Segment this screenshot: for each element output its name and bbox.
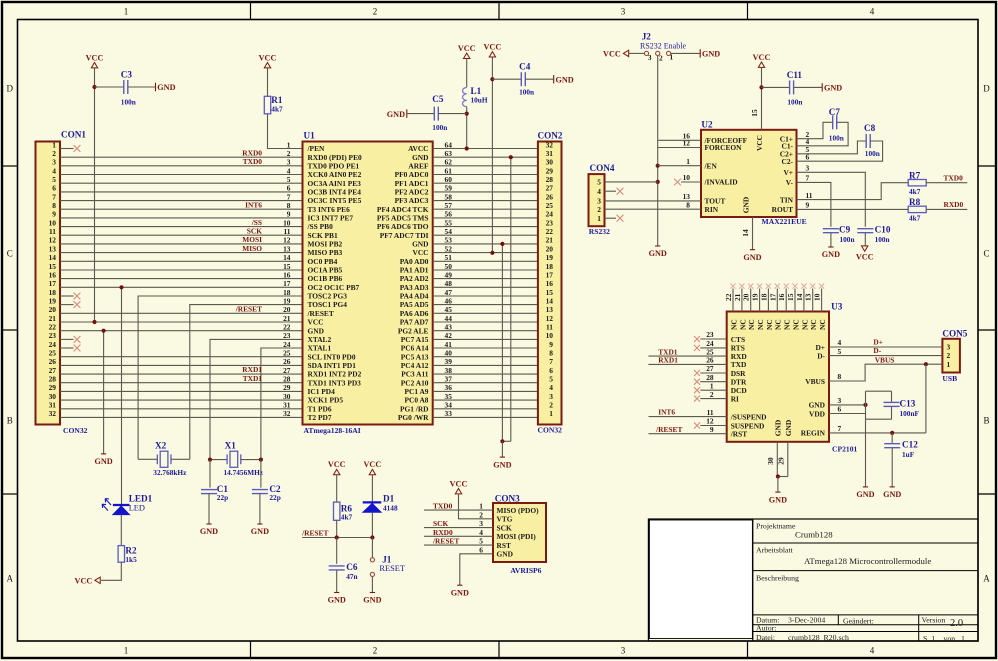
svg-text:Geändert:: Geändert: (843, 617, 874, 626)
svg-text:VCC: VCC (458, 44, 476, 53)
svg-text:15: 15 (786, 293, 795, 301)
svg-text:INT6: INT6 (658, 408, 675, 417)
svg-text:REGIN: REGIN (801, 429, 826, 438)
svg-text:LED: LED (129, 503, 145, 512)
svg-text:47n: 47n (346, 572, 357, 581)
svg-text:OC2 OC1C PB7: OC2 OC1C PB7 (308, 283, 360, 292)
svg-text:FORCEON: FORCEON (705, 143, 743, 152)
svg-text:PC0 A8: PC0 A8 (404, 396, 428, 405)
svg-text:4: 4 (870, 646, 875, 656)
svg-text:12: 12 (546, 314, 554, 323)
svg-text:PF2 ADC2: PF2 ADC2 (395, 188, 429, 197)
svg-text:7: 7 (549, 357, 553, 366)
svg-text:13: 13 (283, 244, 291, 253)
svg-text:46: 46 (445, 296, 453, 305)
svg-text:VCC: VCC (86, 53, 104, 62)
svg-text:12: 12 (49, 236, 57, 245)
svg-text:GND: GND (856, 490, 874, 499)
svg-text:ATmega128 Microcontrollermodul: ATmega128 Microcontrollermodule (804, 556, 931, 566)
svg-text:28: 28 (283, 375, 291, 384)
svg-text:41: 41 (445, 340, 453, 349)
svg-text:PF7 ADC7 TDI: PF7 ADC7 TDI (380, 231, 429, 240)
svg-text:PF1 ADC1: PF1 ADC1 (395, 179, 429, 188)
svg-text:29: 29 (49, 383, 57, 392)
svg-text:TXD0: TXD0 (944, 173, 964, 182)
svg-text:9: 9 (52, 210, 56, 219)
svg-text:VCC: VCC (856, 252, 874, 261)
svg-text:NC: NC (738, 319, 747, 330)
svg-text:17: 17 (49, 279, 57, 288)
svg-text:ATmega128-16AI: ATmega128-16AI (304, 426, 361, 435)
svg-text:19: 19 (49, 296, 57, 305)
svg-text:20: 20 (49, 305, 57, 314)
svg-text:X2: X2 (155, 440, 167, 450)
svg-text:8: 8 (549, 349, 553, 358)
svg-text:VCC: VCC (364, 460, 382, 469)
svg-text:/RESET: /RESET (307, 309, 334, 318)
svg-text:VBUS: VBUS (875, 355, 895, 364)
svg-text:32.768kHz: 32.768kHz (153, 468, 187, 477)
svg-text:/RESET: /RESET (301, 529, 328, 538)
svg-text:C5: C5 (432, 94, 444, 104)
svg-text:25: 25 (49, 349, 57, 358)
svg-text:3: 3 (549, 392, 553, 401)
svg-text:GND: GND (328, 596, 346, 605)
svg-text:22: 22 (49, 323, 57, 332)
svg-text:crumb128_R20.sch: crumb128_R20.sch (788, 633, 849, 642)
svg-text:GND: GND (387, 110, 405, 119)
svg-text:INT6: INT6 (245, 200, 262, 209)
svg-text:PA5 AD5: PA5 AD5 (400, 300, 429, 309)
svg-text:8: 8 (52, 201, 56, 210)
svg-text:GND: GND (497, 550, 513, 559)
svg-text:37: 37 (445, 375, 453, 384)
svg-text:D: D (6, 84, 13, 94)
svg-text:20: 20 (283, 305, 291, 314)
svg-text:23: 23 (546, 218, 554, 227)
svg-text:V-: V- (786, 178, 794, 187)
svg-text:10: 10 (683, 173, 691, 182)
svg-text:PA2 AD2: PA2 AD2 (400, 274, 429, 283)
svg-text:16: 16 (283, 270, 291, 279)
svg-text:29: 29 (546, 166, 554, 175)
svg-text:NC: NC (783, 319, 792, 330)
svg-text:J1: J1 (382, 555, 392, 565)
svg-text:T2 PD7: T2 PD7 (308, 413, 332, 422)
svg-text:3: 3 (479, 519, 483, 528)
svg-text:3-Dec-2004: 3-Dec-2004 (788, 616, 825, 625)
svg-text:GND: GND (774, 420, 783, 436)
svg-text:16: 16 (777, 293, 786, 301)
svg-text:L1: L1 (471, 86, 482, 96)
svg-text:GND: GND (649, 249, 667, 258)
svg-text:VCC: VCC (75, 577, 93, 586)
svg-text:MISO: MISO (242, 244, 262, 253)
svg-text:GND: GND (822, 250, 840, 259)
svg-text:55: 55 (445, 218, 453, 227)
svg-text:GND: GND (556, 75, 574, 84)
svg-text:26: 26 (49, 357, 57, 366)
svg-text:GND: GND (94, 457, 112, 466)
svg-text:30: 30 (766, 457, 775, 465)
svg-text:GND: GND (769, 495, 787, 504)
svg-text:14: 14 (795, 293, 804, 301)
svg-text:SCL INT0 PD0: SCL INT0 PD0 (308, 352, 356, 361)
svg-text:21: 21 (733, 293, 742, 301)
svg-text:PA7 AD7: PA7 AD7 (400, 318, 429, 327)
svg-text:6: 6 (479, 545, 483, 554)
svg-text:32: 32 (283, 409, 291, 418)
svg-text:1k5: 1k5 (125, 555, 137, 564)
svg-text:22p: 22p (217, 493, 228, 502)
svg-text:CTS: CTS (731, 335, 745, 344)
svg-text:1: 1 (287, 140, 291, 149)
svg-text:S. 1: S. 1 (923, 634, 935, 643)
svg-text:26: 26 (283, 357, 291, 366)
svg-text:3: 3 (806, 164, 810, 173)
svg-text:CON32: CON32 (63, 426, 88, 435)
svg-text:XCK1 PD5: XCK1 PD5 (308, 396, 344, 405)
svg-text:20: 20 (546, 244, 554, 253)
svg-text:C9: C9 (839, 225, 851, 235)
svg-text:30: 30 (49, 392, 57, 401)
svg-text:1: 1 (479, 502, 483, 511)
svg-text:VTG: VTG (497, 515, 513, 524)
svg-text:12: 12 (283, 236, 291, 245)
svg-text:GND: GND (743, 253, 761, 262)
svg-text:MOSI PB2: MOSI PB2 (308, 240, 343, 249)
svg-text:22: 22 (724, 293, 733, 301)
svg-text:5: 5 (597, 178, 601, 187)
svg-text:TXD0: TXD0 (433, 502, 453, 511)
svg-text:GND: GND (200, 527, 218, 536)
svg-text:9: 9 (806, 201, 810, 210)
svg-text:VCC: VCC (450, 479, 468, 488)
svg-text:PF0 ADC0: PF0 ADC0 (395, 170, 429, 179)
svg-text:VCC: VCC (328, 460, 346, 469)
svg-text:C12: C12 (902, 439, 918, 449)
svg-text:19: 19 (283, 296, 291, 305)
svg-text:PA0 AD0: PA0 AD0 (400, 257, 429, 266)
svg-text:28: 28 (49, 375, 57, 384)
svg-text:100nF: 100nF (900, 409, 920, 418)
svg-text:MOSI: MOSI (242, 235, 262, 244)
svg-text:GND: GND (412, 240, 428, 249)
svg-text:3: 3 (621, 646, 626, 656)
svg-text:8: 8 (686, 200, 690, 209)
svg-text:PC6 A14: PC6 A14 (401, 344, 429, 353)
svg-text:4k7: 4k7 (909, 187, 921, 196)
svg-text:TOSC1 PG4: TOSC1 PG4 (308, 300, 348, 309)
svg-text:4: 4 (479, 528, 483, 537)
svg-text:35: 35 (445, 392, 453, 401)
svg-text:RIN: RIN (705, 205, 719, 214)
svg-text:C10: C10 (875, 225, 891, 235)
svg-text:14: 14 (283, 253, 291, 262)
svg-text:/EN: /EN (704, 161, 718, 170)
svg-text:28: 28 (546, 175, 554, 184)
svg-text:U2: U2 (701, 120, 713, 130)
svg-text:100n: 100n (432, 123, 447, 132)
svg-text:4k7: 4k7 (341, 513, 353, 522)
svg-text:IC3 INT7 PE7: IC3 INT7 PE7 (308, 214, 354, 223)
svg-text:J2: J2 (642, 32, 652, 42)
svg-text:49: 49 (445, 270, 453, 279)
svg-text:RI: RI (731, 394, 739, 403)
svg-text:2: 2 (659, 54, 663, 63)
svg-text:/INVALID: /INVALID (704, 178, 738, 187)
svg-text:NC: NC (765, 319, 774, 330)
svg-text:Projektname: Projektname (756, 522, 796, 531)
svg-text:17: 17 (768, 293, 777, 301)
svg-text:MAX221EUE: MAX221EUE (762, 217, 807, 226)
svg-text:Autor:: Autor: (756, 624, 776, 633)
svg-text:30: 30 (283, 392, 291, 401)
svg-text:19: 19 (546, 253, 554, 262)
svg-text:18: 18 (759, 293, 768, 301)
svg-text:LED1: LED1 (129, 493, 153, 503)
svg-text:C8: C8 (864, 123, 876, 133)
svg-text:R2: R2 (125, 546, 137, 556)
svg-text:4: 4 (549, 383, 553, 392)
svg-text:RXD0: RXD0 (944, 200, 964, 209)
svg-text:16: 16 (49, 270, 57, 279)
svg-text:PA3 AD3: PA3 AD3 (400, 283, 429, 292)
svg-text:27: 27 (546, 184, 554, 193)
svg-text:X1: X1 (225, 440, 237, 450)
svg-text:CON3: CON3 (495, 494, 520, 504)
svg-text:B: B (983, 416, 989, 426)
svg-text:MISO PB3: MISO PB3 (308, 248, 343, 257)
svg-text:C: C (983, 249, 989, 259)
svg-text:ROUT: ROUT (772, 205, 793, 214)
svg-text:25: 25 (283, 349, 291, 358)
svg-text:1: 1 (124, 7, 129, 17)
svg-text:27: 27 (706, 364, 714, 373)
svg-text:21: 21 (49, 314, 57, 323)
svg-text:CON32: CON32 (538, 426, 563, 435)
svg-text:GND: GND (251, 527, 269, 536)
svg-text:V+: V+ (783, 168, 793, 177)
svg-text:TXD1 INT3 PD3: TXD1 INT3 PD3 (308, 378, 362, 387)
svg-text:RXD0: RXD0 (433, 528, 453, 537)
svg-text:C13: C13 (900, 399, 916, 409)
svg-text:20: 20 (742, 293, 751, 301)
svg-text:VDD: VDD (809, 409, 825, 418)
svg-text:C6: C6 (346, 562, 358, 572)
svg-text:T3 INT6 PE6: T3 INT6 PE6 (308, 205, 351, 214)
svg-text:D1: D1 (383, 493, 395, 503)
svg-text:6: 6 (838, 405, 842, 414)
svg-text:100n: 100n (829, 134, 844, 143)
svg-text:22p: 22p (269, 493, 280, 502)
svg-text:1: 1 (52, 140, 56, 149)
svg-text:5: 5 (52, 175, 56, 184)
svg-text:GND: GND (451, 588, 469, 597)
svg-text:CON4: CON4 (590, 163, 615, 173)
svg-text:1: 1 (686, 157, 690, 166)
svg-text:17: 17 (546, 270, 554, 279)
svg-text:RS232 Enable: RS232 Enable (640, 42, 686, 51)
svg-text:NC: NC (791, 319, 800, 330)
svg-text:TXD0: TXD0 (243, 157, 263, 166)
svg-text:CON2: CON2 (538, 131, 563, 141)
svg-text:NC: NC (756, 319, 765, 330)
svg-text:3: 3 (648, 53, 652, 62)
svg-text:VCC: VCC (484, 42, 502, 51)
svg-text:PC4 A12: PC4 A12 (401, 361, 429, 370)
svg-text:NC: NC (800, 319, 809, 330)
svg-text:2: 2 (373, 646, 378, 656)
svg-text:13: 13 (546, 305, 554, 314)
svg-text:AVRISP6: AVRISP6 (510, 566, 541, 575)
svg-text:XTAL1: XTAL1 (308, 344, 332, 353)
svg-text:OC3B INT4 PE4: OC3B INT4 PE4 (308, 188, 362, 197)
svg-text:/SUSPEND: /SUSPEND (730, 412, 767, 421)
svg-text:RXD1: RXD1 (658, 356, 678, 365)
svg-text:A: A (6, 574, 13, 584)
svg-text:/RESET: /RESET (655, 425, 682, 434)
svg-text:5: 5 (479, 537, 483, 546)
svg-text:C11: C11 (787, 70, 803, 80)
svg-text:Crumb128: Crumb128 (795, 530, 833, 540)
svg-text:29: 29 (283, 383, 291, 392)
svg-text:31: 31 (546, 149, 554, 158)
svg-text:10: 10 (49, 218, 57, 227)
svg-text:8: 8 (287, 201, 291, 210)
svg-text:6: 6 (52, 184, 56, 193)
svg-text:Arbeitsblatt: Arbeitsblatt (756, 546, 794, 555)
svg-text:Beschreibung: Beschreibung (756, 574, 799, 583)
svg-text:10: 10 (283, 218, 291, 227)
svg-text:2: 2 (52, 149, 56, 158)
svg-text:SCK: SCK (433, 519, 448, 528)
svg-text:XCK0 AIN0 PE2: XCK0 AIN0 PE2 (308, 170, 362, 179)
svg-text:PF4 ADC4 TCK: PF4 ADC4 TCK (377, 205, 429, 214)
svg-text:14: 14 (546, 296, 554, 305)
svg-text:SDA INT1 PD1: SDA INT1 PD1 (308, 361, 357, 370)
svg-text:32: 32 (546, 140, 554, 149)
svg-text:GND: GND (157, 83, 175, 92)
svg-text:100n: 100n (875, 235, 890, 244)
svg-text:AREF: AREF (408, 161, 429, 170)
svg-text:/RESET: /RESET (235, 305, 262, 314)
svg-text:TXD1: TXD1 (243, 374, 263, 383)
svg-text:24: 24 (546, 210, 554, 219)
svg-text:OC1B PB6: OC1B PB6 (308, 274, 343, 283)
svg-text:100n: 100n (519, 87, 534, 96)
svg-text:PG0 /WR: PG0 /WR (398, 413, 429, 422)
svg-text:5: 5 (838, 347, 842, 356)
svg-text:PC5 A13: PC5 A13 (401, 352, 429, 361)
svg-text:4k7: 4k7 (909, 213, 921, 222)
svg-text:GND: GND (824, 84, 842, 93)
svg-text:24: 24 (49, 340, 57, 349)
svg-text:/RESET: /RESET (432, 537, 459, 546)
svg-text:2: 2 (373, 7, 378, 17)
svg-text:3: 3 (621, 7, 626, 17)
svg-text:PG2 ALE: PG2 ALE (398, 326, 429, 335)
svg-text:1uF: 1uF (902, 450, 915, 459)
svg-text:10: 10 (813, 293, 822, 301)
svg-text:43: 43 (445, 323, 453, 332)
svg-text:von: von (944, 634, 956, 643)
svg-text:23: 23 (706, 330, 714, 339)
svg-text:40: 40 (445, 349, 453, 358)
svg-text:D-: D- (817, 351, 825, 360)
svg-text:19: 19 (751, 293, 760, 301)
svg-text:IC1 PD4: IC1 PD4 (308, 387, 336, 396)
svg-text:2: 2 (597, 205, 601, 214)
svg-text:PC2 A10: PC2 A10 (401, 378, 429, 387)
svg-text:B: B (7, 416, 13, 426)
svg-text:1: 1 (670, 53, 674, 62)
svg-text:GND: GND (308, 326, 324, 335)
svg-text:C7: C7 (829, 107, 841, 117)
svg-text:21: 21 (546, 236, 554, 245)
svg-text:4: 4 (287, 166, 291, 175)
svg-text:5: 5 (287, 175, 291, 184)
svg-text:1: 1 (124, 646, 129, 656)
svg-text:RS232: RS232 (589, 227, 610, 236)
svg-text:2: 2 (287, 149, 291, 158)
svg-text:OC3A AIN1 PE3: OC3A AIN1 PE3 (308, 179, 362, 188)
svg-text:GND: GND (493, 460, 511, 469)
svg-text:100n: 100n (121, 98, 136, 107)
svg-text:DSR: DSR (731, 369, 746, 378)
svg-text:TIN: TIN (780, 195, 794, 204)
svg-text:24: 24 (283, 340, 291, 349)
svg-text:SCK PB1: SCK PB1 (308, 231, 338, 240)
svg-text:NC: NC (729, 319, 738, 330)
svg-text:14.7456MHz: 14.7456MHz (224, 468, 264, 477)
svg-text:9: 9 (710, 425, 714, 434)
svg-text:VCC: VCC (755, 135, 764, 151)
svg-text:13: 13 (804, 293, 813, 301)
svg-text:NC: NC (747, 319, 756, 330)
svg-text:CP2101: CP2101 (832, 445, 858, 454)
svg-text:NC: NC (774, 319, 783, 330)
svg-text:11: 11 (707, 408, 714, 417)
svg-text:1: 1 (549, 409, 553, 418)
svg-text:Version: Version (922, 616, 946, 625)
svg-text:/RST: /RST (730, 430, 748, 439)
svg-text:RST: RST (497, 541, 511, 550)
svg-text:GND: GND (702, 50, 720, 59)
svg-text:4148: 4148 (383, 503, 398, 512)
svg-text:GND: GND (883, 490, 901, 499)
svg-text:11: 11 (546, 323, 553, 332)
svg-text:17: 17 (283, 279, 291, 288)
svg-text:CON1: CON1 (61, 130, 86, 140)
svg-text:GND: GND (363, 596, 381, 605)
svg-text:AVCC: AVCC (408, 144, 428, 153)
svg-text:NC: NC (818, 319, 827, 330)
svg-text:4: 4 (597, 187, 601, 196)
svg-text:VCC: VCC (259, 53, 277, 62)
svg-text:MOSI (PDI): MOSI (PDI) (497, 532, 537, 541)
svg-text:MISO (PDO): MISO (PDO) (497, 506, 540, 515)
svg-text:VBUS: VBUS (805, 377, 825, 386)
svg-text:21: 21 (283, 314, 291, 323)
svg-text:4: 4 (52, 166, 56, 175)
svg-text:2: 2 (710, 390, 714, 399)
svg-text:1: 1 (597, 214, 601, 223)
svg-text:14: 14 (741, 229, 750, 237)
svg-text:25: 25 (546, 201, 554, 210)
svg-text:14: 14 (49, 253, 57, 262)
svg-text:VCC: VCC (412, 248, 428, 257)
